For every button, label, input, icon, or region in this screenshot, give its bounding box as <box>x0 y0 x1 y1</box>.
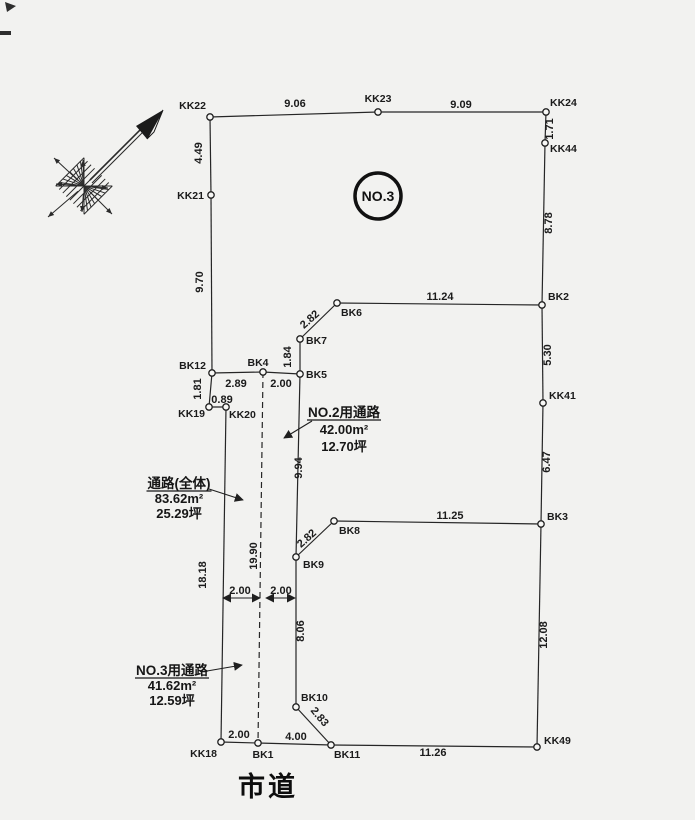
distance-label-5: 9.70 <box>194 271 206 292</box>
survey-point-BK2 <box>539 302 545 308</box>
area-label-title-0: NO.2用通路 <box>308 404 381 420</box>
survey-point-KK21 <box>208 192 214 198</box>
survey-point-BK12 <box>209 370 215 376</box>
survey-point-label-KK19: KK19 <box>178 408 205 420</box>
survey-point-BK7 <box>297 336 303 342</box>
survey-point-BK11 <box>328 742 334 748</box>
area-label-sqm-0: 42.00m² <box>320 422 369 437</box>
distance-label-1: 9.09 <box>450 99 471 111</box>
boundary-edge-KK18-BK1 <box>221 742 258 743</box>
survey-point-label-BK5: BK5 <box>306 369 327 381</box>
survey-point-BK9 <box>293 554 299 560</box>
distance-label-2: 4.49 <box>193 142 205 163</box>
parcel-number-label: NO.3 <box>362 188 395 204</box>
area-leader-arrow-2 <box>207 665 242 671</box>
distance-label-10: 2.00 <box>270 378 291 390</box>
boundary-edge-BK6-BK2 <box>337 303 542 305</box>
survey-point-label-BK2: BK2 <box>548 291 569 303</box>
distance-label-3: 1.71 <box>544 118 556 139</box>
boundary-edge-KK22-KK21 <box>210 117 211 195</box>
survey-point-BK4 <box>260 369 266 375</box>
survey-point-label-BK11: BK11 <box>334 749 360 761</box>
survey-point-KK18 <box>218 739 224 745</box>
survey-point-BK5 <box>297 371 303 377</box>
distance-label-25: 2.00 <box>228 729 249 741</box>
survey-point-KK44 <box>542 140 548 146</box>
area-label-tsubo-1: 25.29坪 <box>156 506 202 521</box>
distance-label-9: 2.89 <box>225 378 246 390</box>
boundary-edge-BK4-BK5 <box>263 372 300 374</box>
distance-label-11: 1.81 <box>192 378 204 399</box>
boundary-edge-KK21-BK12 <box>211 195 212 373</box>
survey-point-KK41 <box>540 400 546 406</box>
survey-point-label-KK23: KK23 <box>365 93 392 105</box>
survey-point-KK23 <box>375 109 381 115</box>
survey-point-label-KK49: KK49 <box>544 735 571 747</box>
survey-point-label-KK21: KK21 <box>177 190 204 202</box>
distance-label-21: 2.00 <box>270 585 291 597</box>
survey-point-BK1 <box>255 740 261 746</box>
area-label-title-2: NO.3用通路 <box>136 662 209 678</box>
distance-label-22: 8.06 <box>295 620 307 641</box>
survey-point-label-KK18: KK18 <box>190 748 217 760</box>
distance-label-12: 0.89 <box>211 394 232 406</box>
survey-point-label-BK6: BK6 <box>341 307 362 319</box>
distance-label-4: 8.78 <box>543 212 555 233</box>
distance-label-24: 2.83 <box>308 705 331 729</box>
area-label-tsubo-0: 12.70坪 <box>321 439 367 454</box>
boundary-edge-BK12-BK4 <box>212 372 263 373</box>
survey-point-label-KK24: KK24 <box>550 97 577 109</box>
survey-point-KK49 <box>534 744 540 750</box>
distance-label-27: 11.26 <box>420 747 447 759</box>
distance-label-15: 6.47 <box>541 451 553 472</box>
distance-label-20: 2.00 <box>229 585 250 597</box>
north-compass-icon <box>48 110 163 217</box>
road-label: 市道 <box>238 771 298 802</box>
survey-point-label-KK44: KK44 <box>550 143 577 155</box>
boundary-edge-KK22-KK23 <box>210 112 378 117</box>
survey-point-label-BK3: BK3 <box>547 511 568 523</box>
survey-point-label-KK20: KK20 <box>229 409 256 421</box>
scan-artifact <box>0 31 11 35</box>
survey-point-BK3 <box>538 521 544 527</box>
survey-point-label-BK7: BK7 <box>306 335 327 347</box>
survey-point-BK10 <box>293 704 299 710</box>
distance-label-26: 4.00 <box>285 731 306 743</box>
distance-label-23: 12.08 <box>538 621 550 649</box>
survey-point-label-KK41: KK41 <box>549 390 576 402</box>
survey-point-label-BK9: BK9 <box>303 559 324 571</box>
area-leader-arrow-0 <box>284 421 312 438</box>
distance-label-7: 2.82 <box>298 308 322 331</box>
survey-point-label-BK4: BK4 <box>247 357 268 369</box>
scan-artifact <box>5 2 16 12</box>
survey-plot-svg: KK22KK23KK24KK44KK21BK12BK4BK5BK7BK6BK2K… <box>0 0 695 820</box>
area-leader-arrow-1 <box>209 489 243 500</box>
distance-label-19: 19.90 <box>248 542 260 570</box>
area-label-sqm-1: 83.62m² <box>155 491 204 506</box>
area-label-tsubo-2: 12.59坪 <box>149 693 195 708</box>
survey-point-BK6 <box>334 300 340 306</box>
boundary-edge-BK1-BK11 <box>258 743 331 745</box>
area-label-sqm-2: 41.62m² <box>148 678 197 693</box>
distance-label-18: 18.18 <box>197 561 209 589</box>
survey-point-label-BK12: BK12 <box>179 360 206 372</box>
survey-point-label-BK10: BK10 <box>301 692 328 704</box>
survey-point-label-BK8: BK8 <box>339 525 360 537</box>
survey-point-KK22 <box>207 114 213 120</box>
survey-point-label-KK22: KK22 <box>179 100 206 112</box>
survey-plot-page: KK22KK23KK24KK44KK21BK12BK4BK5BK7BK6BK2K… <box>0 0 695 820</box>
survey-point-label-BK1: BK1 <box>252 749 273 761</box>
distance-label-14: 9.94 <box>293 456 305 478</box>
distance-label-8: 1.84 <box>282 345 294 367</box>
area-label-title-1: 通路(全体) <box>148 475 211 491</box>
distance-label-16: 11.25 <box>437 510 464 522</box>
distance-label-0: 9.06 <box>284 98 305 110</box>
distance-label-13: 5.30 <box>542 344 554 365</box>
distance-label-6: 11.24 <box>427 291 455 303</box>
survey-point-KK24 <box>543 109 549 115</box>
survey-point-BK8 <box>331 518 337 524</box>
boundary-edge-KK20-KK18 <box>221 407 226 742</box>
